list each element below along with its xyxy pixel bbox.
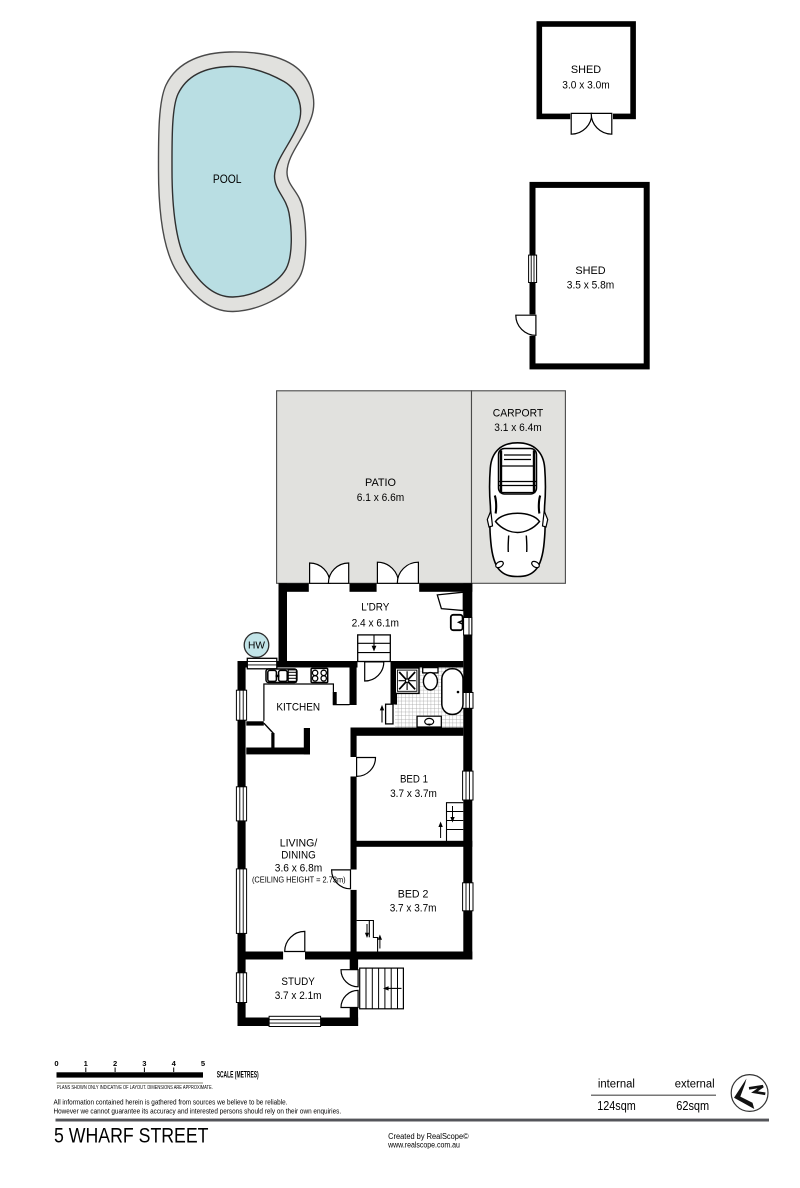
svg-text:3.7 x 2.1m: 3.7 x 2.1m <box>275 990 322 1002</box>
svg-text:However we cannot guarantee it: However we cannot guarantee its accuracy… <box>54 1106 342 1115</box>
svg-text:3.5 x 5.8m: 3.5 x 5.8m <box>567 279 614 291</box>
svg-text:LIVING/: LIVING/ <box>280 837 318 849</box>
svg-text:6.1 x 6.6m: 6.1 x 6.6m <box>357 492 404 504</box>
svg-text:2.4 x 6.1m: 2.4 x 6.1m <box>352 618 399 630</box>
svg-text:(CEILING HEIGHT = 2.73m): (CEILING HEIGHT = 2.73m) <box>252 876 346 885</box>
svg-text:internal: internal <box>598 1079 635 1091</box>
svg-text:DINING: DINING <box>281 850 316 862</box>
svg-text:HW: HW <box>248 641 266 652</box>
svg-text:All information contained here: All information contained herein is gath… <box>54 1097 288 1106</box>
svg-text:CARPORT: CARPORT <box>493 408 544 420</box>
svg-text:SCALE (METRES): SCALE (METRES) <box>217 1069 259 1079</box>
svg-text:PLANS SHOWN ONLY INDICATIVE OF: PLANS SHOWN ONLY INDICATIVE OF LAYOUT. D… <box>57 1085 213 1091</box>
svg-text:3.7 x 3.7m: 3.7 x 3.7m <box>390 902 437 914</box>
svg-text:BED 1: BED 1 <box>400 774 428 786</box>
svg-text:3: 3 <box>142 1059 146 1068</box>
svg-text:SHED: SHED <box>571 64 601 76</box>
svg-text:www.realscope.com.au: www.realscope.com.au <box>387 1141 460 1150</box>
svg-text:L'DRY: L'DRY <box>361 602 390 614</box>
svg-text:3.7 x 3.7m: 3.7 x 3.7m <box>390 788 437 800</box>
svg-text:3.6 x 6.8m: 3.6 x 6.8m <box>275 863 322 875</box>
svg-text:external: external <box>675 1079 715 1091</box>
svg-text:SHED: SHED <box>575 265 605 277</box>
svg-text:PATIO: PATIO <box>365 477 396 489</box>
svg-text:BED 2: BED 2 <box>398 888 429 900</box>
svg-text:62sqm: 62sqm <box>676 1098 709 1113</box>
svg-text:3.0 x 3.0m: 3.0 x 3.0m <box>562 79 609 91</box>
svg-text:KITCHEN: KITCHEN <box>276 702 320 714</box>
svg-text:124sqm: 124sqm <box>597 1098 636 1113</box>
svg-text:POOL: POOL <box>213 174 242 186</box>
svg-text:2: 2 <box>113 1059 117 1068</box>
svg-text:3.1 x 6.4m: 3.1 x 6.4m <box>494 422 541 434</box>
svg-text:0: 0 <box>54 1059 58 1068</box>
svg-text:STUDY: STUDY <box>281 976 315 988</box>
svg-text:Created by RealScope©: Created by RealScope© <box>388 1132 469 1141</box>
svg-text:5 WHARF STREET: 5 WHARF STREET <box>54 1124 209 1148</box>
